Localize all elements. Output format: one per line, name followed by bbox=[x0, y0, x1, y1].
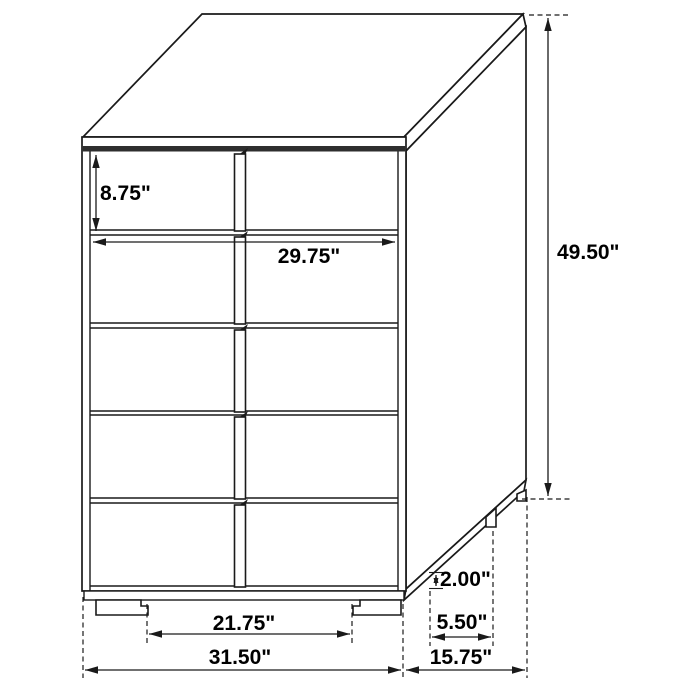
dim-label-foot-inset: 5.50" bbox=[437, 611, 488, 634]
dim-label-foot-span: 21.75" bbox=[213, 612, 276, 635]
dim-label-overall-depth: 15.75" bbox=[430, 646, 493, 669]
dim-foot-span: 21.75" bbox=[147, 604, 352, 643]
drawer-handle-4 bbox=[234, 411, 248, 499]
drawer-handle-3 bbox=[234, 324, 248, 412]
dim-overall-height: 49.50" bbox=[522, 15, 620, 499]
dim-label-overall-height: 49.50" bbox=[557, 241, 620, 264]
chest-dimension-diagram: 8.75" 29.75" 49.50" 2.00" bbox=[0, 0, 700, 700]
top-rail bbox=[83, 146, 405, 152]
dim-label-base-height: 2.00" bbox=[440, 568, 491, 591]
drawer-handle-5 bbox=[234, 499, 248, 587]
front-right-foot bbox=[353, 600, 401, 615]
drawer-handle-1 bbox=[234, 148, 248, 231]
drawer-handle-2 bbox=[234, 231, 248, 324]
dim-base-height: 2.00" bbox=[429, 568, 491, 591]
dim-label-drawer-height: 8.75" bbox=[100, 182, 151, 205]
front-left-foot bbox=[96, 600, 148, 615]
diagram-canvas: 8.75" 29.75" 49.50" 2.00" bbox=[0, 0, 700, 700]
chest-drawing bbox=[82, 14, 526, 615]
dim-label-drawer-width: 29.75" bbox=[278, 245, 341, 268]
front-plinth bbox=[84, 591, 404, 600]
dim-label-overall-width: 31.50" bbox=[209, 646, 272, 669]
